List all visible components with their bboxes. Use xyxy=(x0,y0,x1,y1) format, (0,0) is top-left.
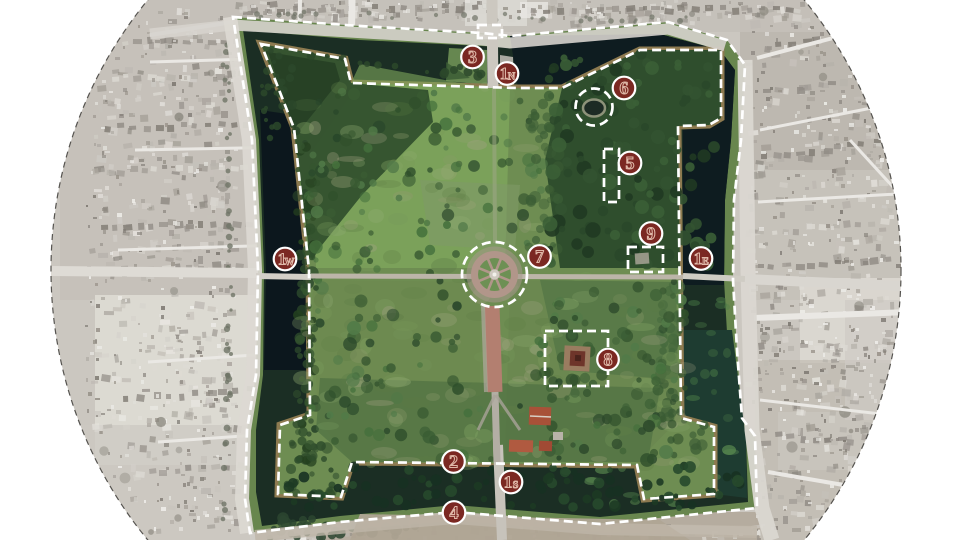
svg-text:4: 4 xyxy=(450,503,459,523)
svg-text:2: 2 xyxy=(449,452,458,472)
svg-text:E: E xyxy=(702,257,709,268)
svg-text:1: 1 xyxy=(504,473,513,492)
svg-text:7: 7 xyxy=(535,247,544,267)
svg-text:1: 1 xyxy=(694,249,703,268)
svg-text:6: 6 xyxy=(620,78,629,98)
svg-text:W: W xyxy=(285,257,295,268)
svg-text:9: 9 xyxy=(647,224,656,244)
svg-text:8: 8 xyxy=(604,350,613,370)
svg-text:N: N xyxy=(508,72,516,83)
svg-text:5: 5 xyxy=(626,153,635,173)
svg-text:3: 3 xyxy=(468,47,477,67)
svg-text:S: S xyxy=(513,480,519,491)
